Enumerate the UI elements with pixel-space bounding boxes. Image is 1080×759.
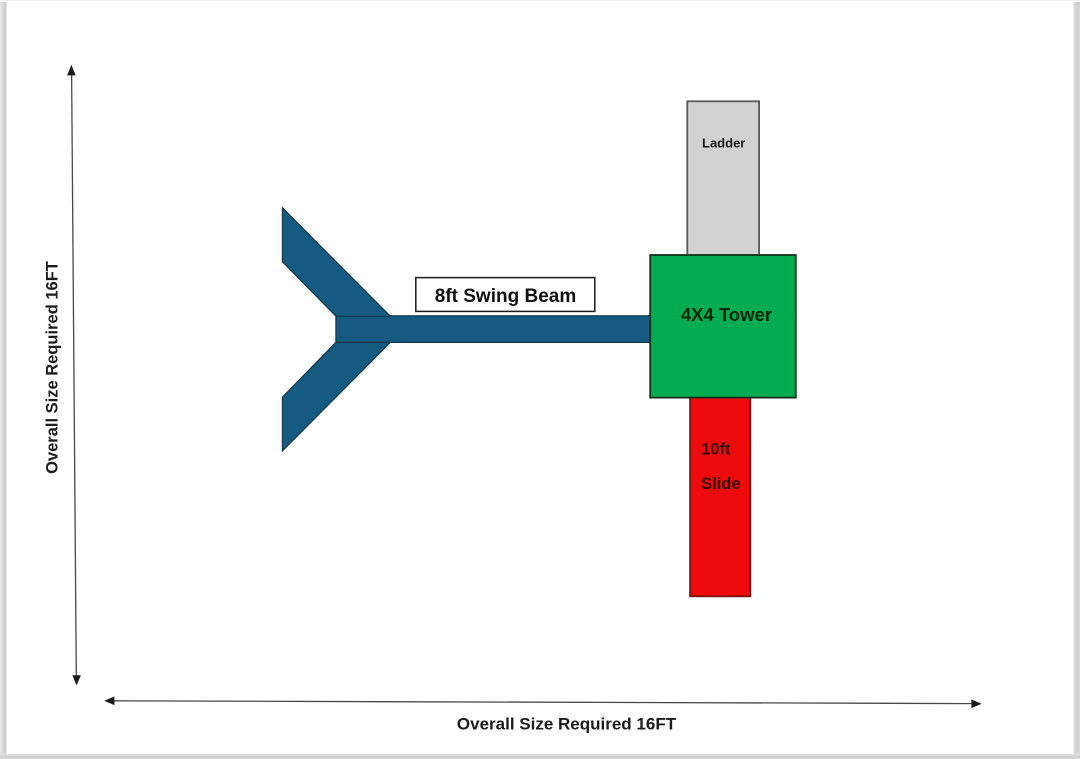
svg-text:4X4 Tower: 4X4 Tower: [681, 304, 772, 325]
svg-text:10ft: 10ft: [701, 440, 731, 458]
svg-text:Overall Size Required 16FT: Overall Size Required 16FT: [457, 715, 677, 734]
svg-text:Overall Size Required 16FT: Overall Size Required 16FT: [44, 261, 62, 474]
svg-text:8ft Swing Beam: 8ft Swing Beam: [435, 286, 576, 307]
svg-text:Ladder: Ladder: [702, 136, 745, 151]
svg-text:Slide: Slide: [701, 475, 740, 493]
